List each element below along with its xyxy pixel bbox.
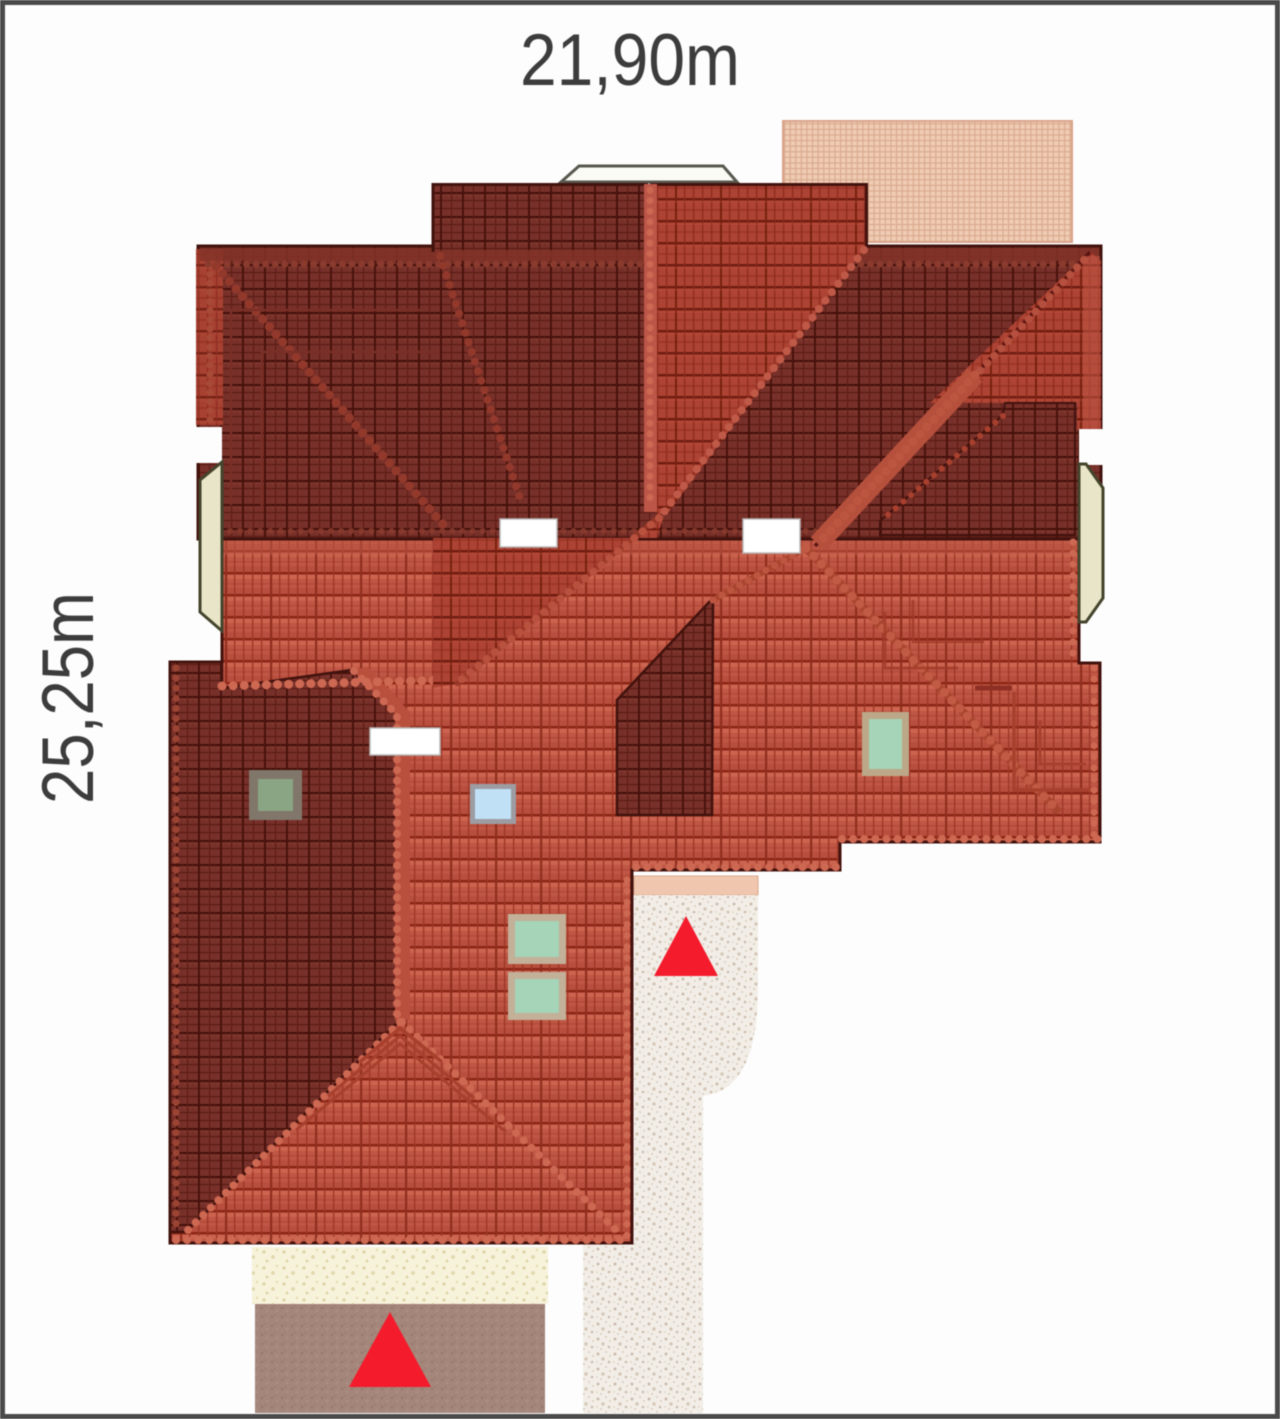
svg-text:25,25m: 25,25m xyxy=(28,592,109,804)
svg-text:21,90m: 21,90m xyxy=(520,20,740,101)
